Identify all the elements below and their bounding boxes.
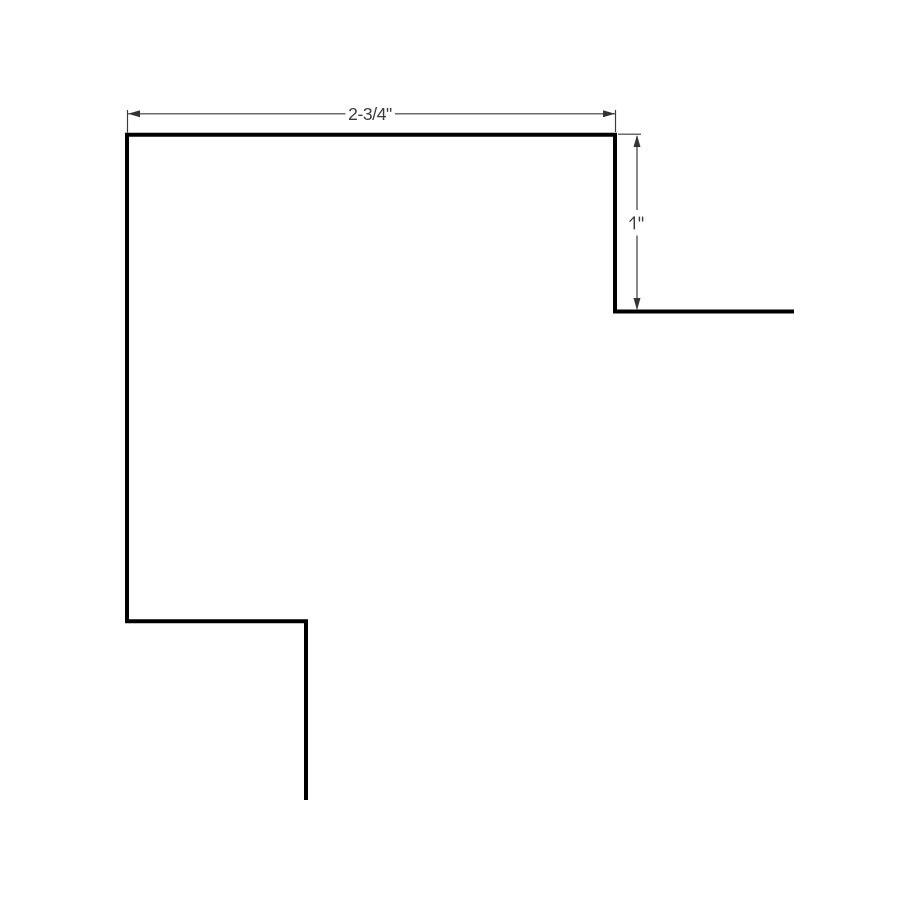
svg-text:2-3/4": 2-3/4" xyxy=(348,104,392,124)
